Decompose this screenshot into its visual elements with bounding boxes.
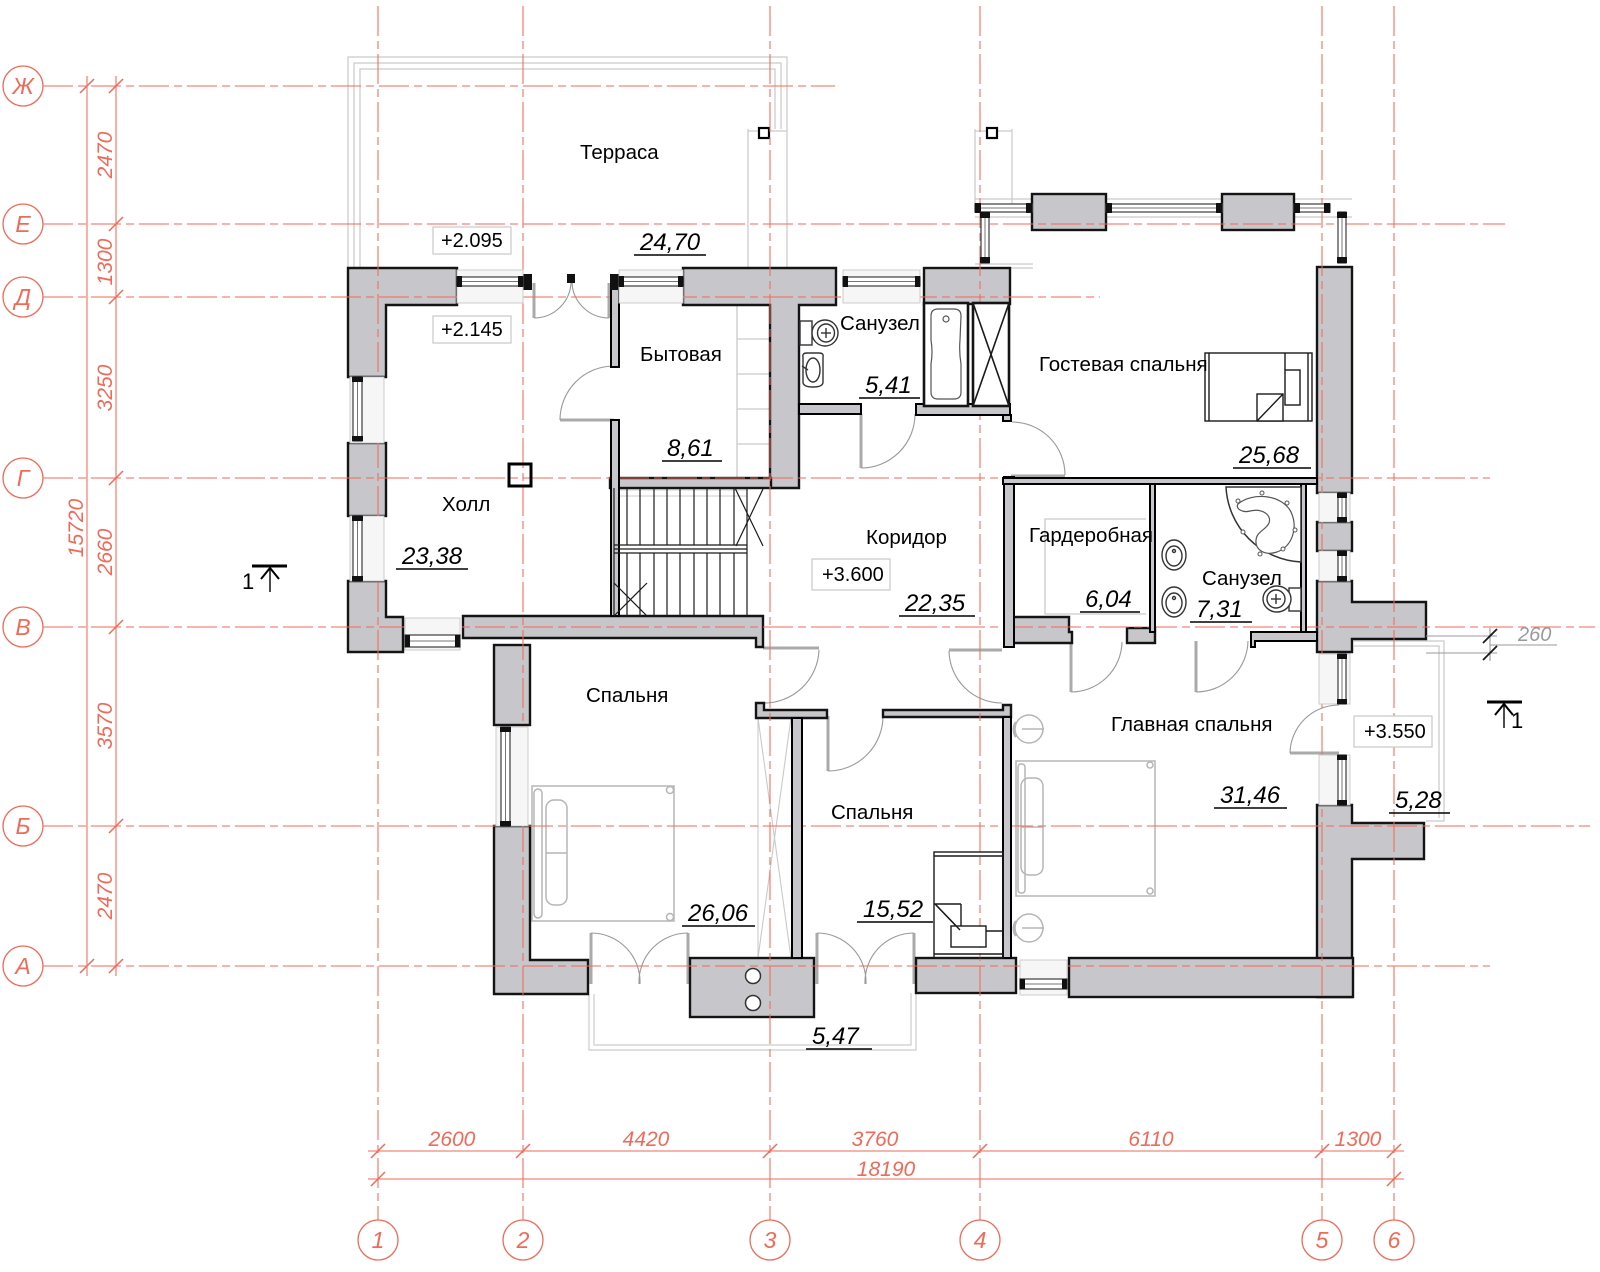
svg-text:18190: 18190 [857,1158,916,1181]
svg-text:+3.550: +3.550 [1364,721,1426,743]
svg-text:Гостевая спальня: Гостевая спальня [1039,353,1208,376]
svg-text:1: 1 [1511,708,1523,733]
svg-text:22,35: 22,35 [904,590,966,617]
svg-text:26,06: 26,06 [687,900,749,927]
svg-text:Коридор: Коридор [866,526,947,549]
svg-text:Ж: Ж [11,73,35,99]
svg-text:4: 4 [974,1227,987,1253]
svg-text:Гардеробная: Гардеробная [1029,524,1153,547]
svg-text:15,52: 15,52 [863,896,923,923]
svg-text:2600: 2600 [428,1128,476,1151]
svg-text:25,68: 25,68 [1238,442,1300,469]
svg-text:Е: Е [15,211,31,237]
svg-text:2660: 2660 [94,528,117,576]
svg-text:Бытовая: Бытовая [640,343,722,366]
svg-text:4420: 4420 [623,1128,670,1151]
svg-text:Г: Г [17,465,31,491]
svg-text:260: 260 [1517,624,1551,646]
svg-text:24,70: 24,70 [639,229,701,256]
svg-text:31,46: 31,46 [1220,782,1281,809]
svg-text:Б: Б [16,813,31,839]
svg-text:3: 3 [764,1227,777,1253]
svg-text:6,04: 6,04 [1085,586,1132,613]
svg-text:3760: 3760 [852,1128,899,1151]
svg-text:Спальня: Спальня [831,801,913,824]
svg-text:8,61: 8,61 [667,435,714,462]
svg-text:В: В [15,614,30,640]
svg-text:6110: 6110 [1128,1128,1173,1151]
svg-text:2470: 2470 [94,872,117,920]
svg-text:2: 2 [516,1227,530,1253]
svg-text:1300: 1300 [1335,1128,1382,1151]
svg-text:2470: 2470 [94,131,117,179]
svg-text:3250: 3250 [94,364,117,411]
svg-text:6: 6 [1388,1227,1401,1253]
svg-text:Холл: Холл [442,493,490,516]
svg-text:1: 1 [242,569,254,594]
svg-text:5,47: 5,47 [812,1023,860,1050]
svg-text:А: А [13,953,30,979]
svg-text:7,31: 7,31 [1196,596,1243,623]
svg-text:5: 5 [1316,1227,1329,1253]
svg-text:+3.600: +3.600 [822,564,884,586]
svg-text:Д: Д [12,284,31,310]
svg-text:Главная спальня: Главная спальня [1111,713,1273,736]
svg-text:5,28: 5,28 [1395,787,1442,814]
svg-text:Терраса: Терраса [580,141,659,164]
svg-text:1300: 1300 [94,238,117,285]
svg-text:Санузел: Санузел [840,312,920,335]
svg-text:5,41: 5,41 [865,372,912,399]
svg-text:1: 1 [372,1227,385,1253]
svg-text:Спальня: Спальня [586,684,668,707]
svg-text:15720: 15720 [65,498,88,557]
svg-text:+2.145: +2.145 [441,319,503,341]
svg-text:+2.095: +2.095 [441,230,503,252]
svg-text:23,38: 23,38 [401,543,463,570]
svg-text:3570: 3570 [94,702,117,749]
svg-text:Санузел: Санузел [1202,567,1282,590]
